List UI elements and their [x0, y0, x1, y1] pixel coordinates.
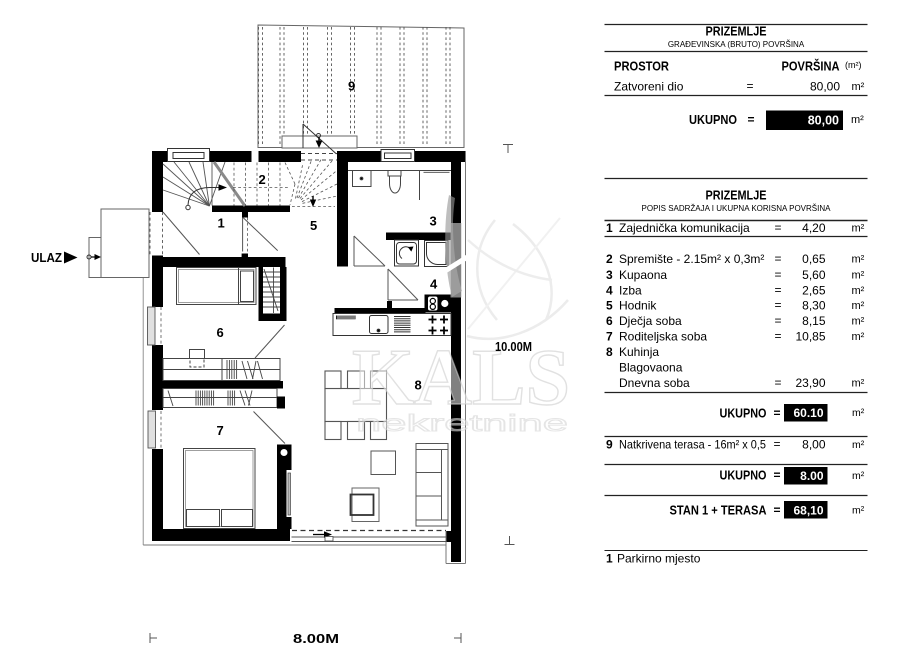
svg-text:=: = [774, 221, 781, 235]
svg-text:m²: m² [852, 331, 865, 343]
svg-text:8,30: 8,30 [802, 299, 826, 313]
svg-text:68,10: 68,10 [793, 504, 823, 518]
svg-text:9: 9 [348, 79, 355, 94]
svg-text:Hodnik: Hodnik [619, 299, 657, 313]
svg-text:m²: m² [852, 316, 865, 328]
svg-text:60.10: 60.10 [793, 406, 823, 420]
svg-text:m²: m² [852, 285, 865, 297]
svg-text:5: 5 [606, 299, 613, 313]
svg-text:PRIZEMLJE: PRIZEMLJE [706, 189, 767, 203]
svg-text:m²: m² [852, 439, 865, 451]
svg-text:m²: m² [851, 114, 864, 126]
svg-text:8.00: 8.00 [800, 469, 824, 483]
svg-text:6: 6 [606, 314, 613, 328]
svg-text:=: = [746, 79, 753, 93]
svg-text:UKUPNO: UKUPNO [689, 113, 737, 127]
svg-text:=: = [774, 376, 781, 390]
svg-text:UKUPNO: UKUPNO [720, 407, 767, 421]
svg-text:2: 2 [259, 172, 266, 187]
svg-text:=: = [774, 268, 781, 282]
svg-text:m²: m² [852, 254, 865, 266]
svg-text:STAN 1 + TERASA: STAN 1 + TERASA [670, 504, 767, 518]
svg-text:=: = [774, 252, 781, 266]
svg-text:Kuhinja: Kuhinja [619, 345, 659, 359]
svg-text:8.00M: 8.00M [293, 632, 339, 646]
svg-text:80,00: 80,00 [810, 80, 840, 94]
svg-text:3: 3 [606, 268, 613, 282]
svg-text:POPIS SADRŽAJA I UKUPNA KORISN: POPIS SADRŽAJA I UKUPNA KORISNA POVRŠINA [642, 204, 832, 213]
svg-text:=: = [773, 437, 780, 451]
svg-text:=: = [774, 283, 781, 297]
svg-text:5,60: 5,60 [802, 268, 826, 282]
svg-text:5: 5 [310, 218, 317, 233]
svg-text:=: = [774, 329, 781, 343]
svg-text:nekretnine: nekretnine [356, 410, 568, 436]
svg-text:KALS: KALS [352, 334, 570, 422]
svg-text:10,85: 10,85 [795, 330, 825, 344]
svg-text:1: 1 [218, 216, 225, 231]
svg-text:Natkrivena terasa - 16m² x 0,5: Natkrivena terasa - 16m² x 0,5 [619, 438, 766, 452]
svg-text:ULAZ: ULAZ [31, 250, 62, 265]
svg-text:m²: m² [852, 270, 865, 282]
svg-text:10.00M: 10.00M [495, 340, 532, 354]
svg-text:0,65: 0,65 [802, 252, 826, 266]
svg-text:UKUPNO: UKUPNO [720, 469, 767, 483]
svg-text:3: 3 [430, 214, 437, 229]
svg-text:m²: m² [852, 470, 865, 482]
svg-text:Kupaona: Kupaona [619, 268, 667, 282]
svg-text:4: 4 [606, 284, 613, 298]
svg-text:4: 4 [430, 277, 438, 292]
svg-text:=: = [774, 298, 781, 312]
svg-text:2,65: 2,65 [802, 284, 826, 298]
svg-text:m²: m² [852, 81, 865, 93]
svg-text:4,20: 4,20 [802, 221, 826, 235]
svg-text:m²: m² [852, 300, 865, 312]
svg-text:9: 9 [606, 438, 613, 452]
svg-text:1: 1 [606, 552, 613, 566]
svg-text:Zajednička komunikacija: Zajednička komunikacija [619, 221, 750, 235]
svg-text:8: 8 [606, 345, 613, 359]
svg-text:m²: m² [852, 407, 865, 419]
svg-text:Spremište - 2.15m² x 0,3m²: Spremište - 2.15m² x 0,3m² [619, 252, 764, 266]
svg-text:2: 2 [606, 252, 613, 266]
svg-text:Dnevna soba: Dnevna soba [619, 376, 690, 390]
svg-text:1: 1 [606, 221, 613, 235]
svg-text:23,90: 23,90 [795, 376, 825, 390]
svg-text:=: = [774, 314, 781, 328]
svg-text:8,00: 8,00 [802, 438, 826, 452]
svg-text:7: 7 [217, 423, 224, 438]
svg-text:7: 7 [606, 330, 613, 344]
svg-text:8,15: 8,15 [802, 314, 826, 328]
svg-text:GRAĐEVINSKA (BRUTO) POVRŠINA: GRAĐEVINSKA (BRUTO) POVRŠINA [668, 40, 805, 49]
svg-text:Parkirno mjesto: Parkirno mjesto [617, 552, 701, 566]
svg-text:=: = [773, 406, 780, 420]
svg-text:PROSTOR: PROSTOR [614, 60, 669, 74]
svg-text:PRIZEMLJE: PRIZEMLJE [706, 25, 767, 39]
svg-text:(m²): (m²) [845, 60, 862, 70]
svg-text:=: = [773, 468, 780, 482]
svg-text:Roditeljska soba: Roditeljska soba [619, 330, 707, 344]
svg-text:m²: m² [852, 223, 865, 235]
svg-text:6: 6 [217, 325, 224, 340]
svg-text:m²: m² [852, 505, 865, 517]
svg-text:m²: m² [852, 378, 865, 390]
svg-text:Izba: Izba [619, 284, 642, 298]
svg-text:Dječja soba: Dječja soba [619, 314, 682, 328]
svg-text:Blagovaona: Blagovaona [619, 361, 683, 375]
svg-text:POVRŠINA: POVRŠINA [782, 59, 840, 74]
svg-text:=: = [747, 113, 754, 127]
svg-text:Zatvoreni dio: Zatvoreni dio [614, 80, 684, 94]
svg-text:=: = [773, 503, 780, 517]
svg-text:80,00: 80,00 [808, 114, 839, 128]
